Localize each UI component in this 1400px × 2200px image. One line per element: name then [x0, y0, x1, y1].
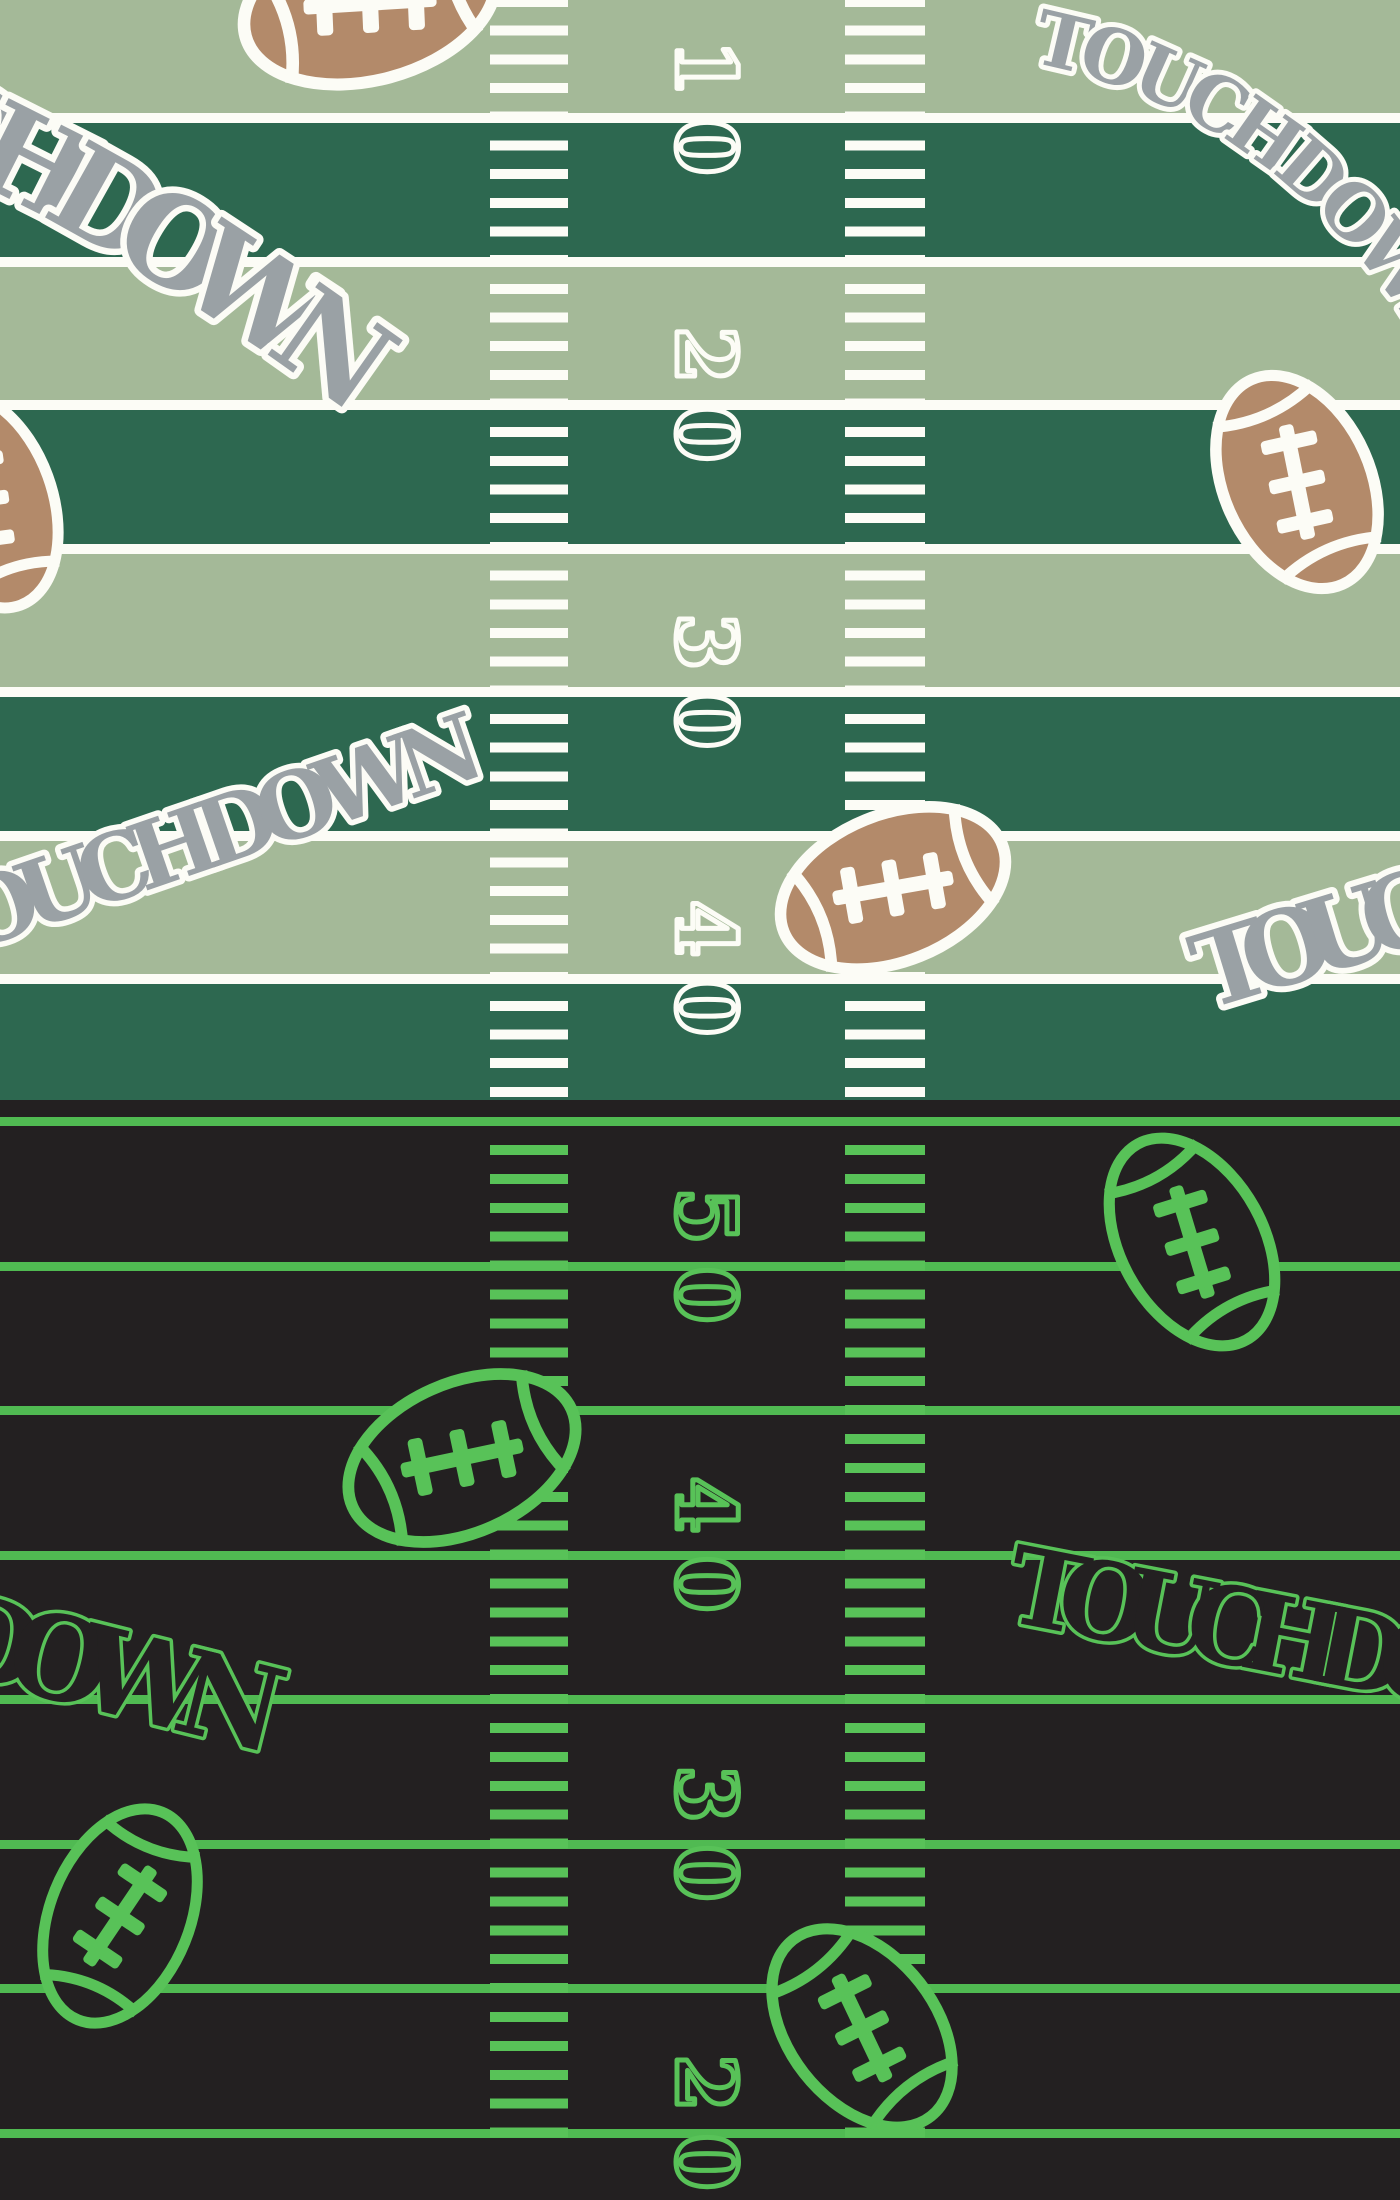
pattern-art-layer: 10 20 30 40 50 40 30 20 TOUCHDOWN TOUCHD… — [0, 0, 1400, 2200]
touchdown-text: TOUCHDOWN — [997, 1523, 1400, 1766]
football-icon — [0, 371, 86, 629]
football-icon — [13, 1786, 227, 2046]
yard-number: 20 — [657, 326, 753, 484]
yard-number: 50 — [657, 1187, 753, 1345]
yard-number: 30 — [657, 1765, 753, 1923]
touchdown-text: TOUCHDOWN — [0, 1481, 294, 1780]
football-icon — [735, 1894, 989, 2161]
football-icon — [1075, 1109, 1308, 1374]
touchdown-text: TOUCHDOWN — [1178, 741, 1400, 1034]
touchdown-text: TOUCHDOWN — [0, 692, 494, 989]
football-icon — [756, 776, 1029, 1000]
football-icon — [322, 1341, 602, 1575]
yard-number: 30 — [657, 613, 753, 771]
yard-number: 40 — [657, 900, 753, 1058]
touchdown-text: TOUCHDOWN — [1026, 0, 1400, 371]
yard-number: 10 — [657, 39, 753, 197]
yard-number: 20 — [657, 2054, 753, 2200]
football-icon — [1184, 350, 1400, 614]
football-icon — [226, 0, 515, 111]
yard-number: 40 — [657, 1476, 753, 1634]
football-touchdown-pattern: 10 20 30 40 50 40 30 20 TOUCHDOWN TOUCHD… — [0, 0, 1400, 2200]
